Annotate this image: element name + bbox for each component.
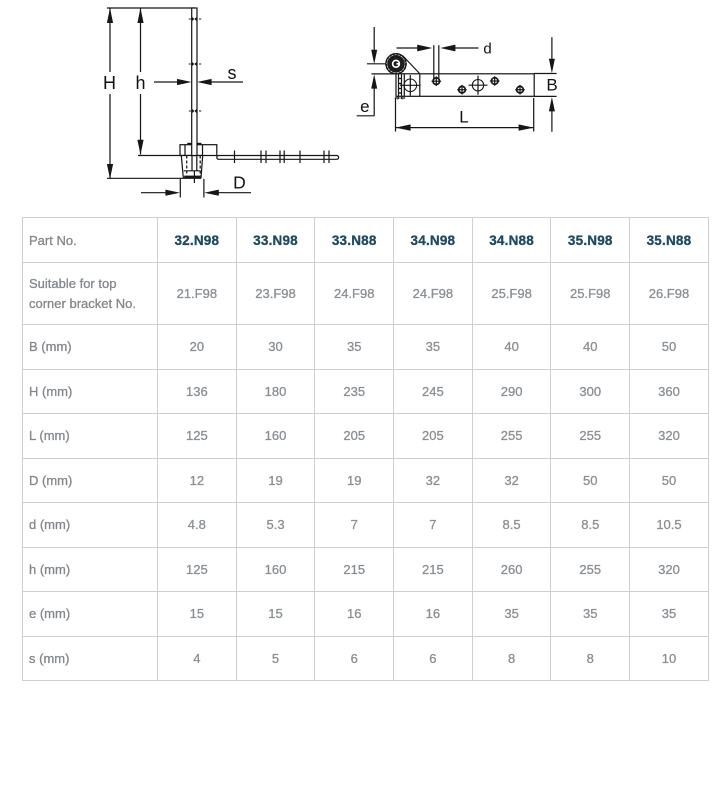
- svg-text:e: e: [360, 97, 369, 116]
- svg-text:h: h: [135, 73, 145, 93]
- svg-text:D: D: [233, 173, 246, 193]
- svg-text:H: H: [103, 73, 116, 93]
- svg-text:d: d: [483, 40, 491, 57]
- svg-text:s: s: [228, 63, 237, 83]
- svg-text:L: L: [459, 108, 468, 127]
- svg-text:B: B: [546, 76, 557, 95]
